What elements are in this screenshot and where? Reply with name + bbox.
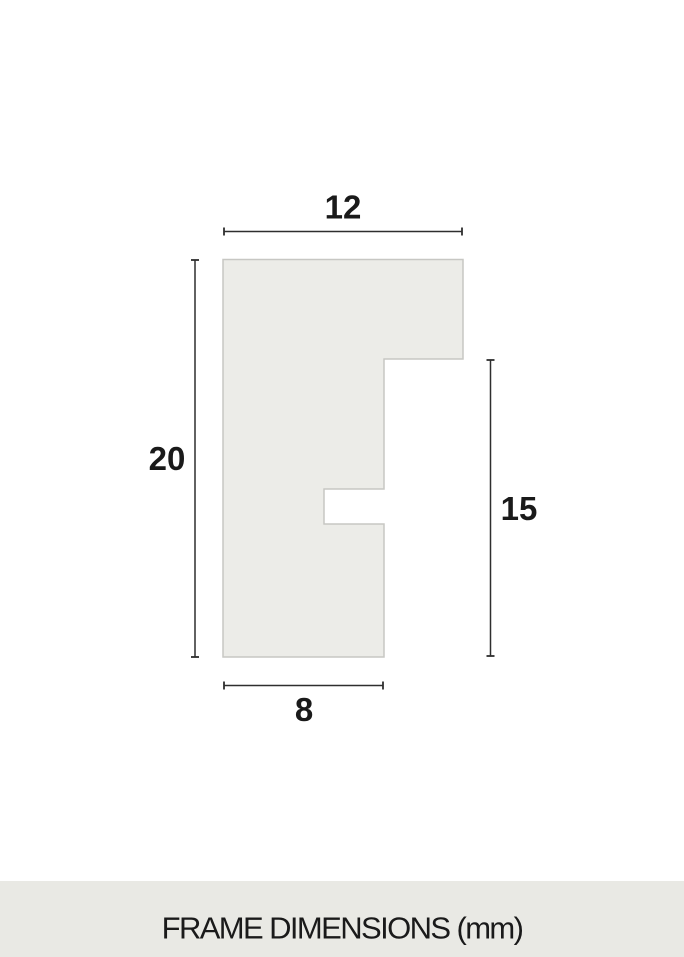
- svg-text:15: 15: [501, 490, 538, 527]
- svg-text:FRAME DIMENSIONS (mm): FRAME DIMENSIONS (mm): [162, 911, 523, 946]
- svg-text:20: 20: [149, 440, 186, 477]
- svg-text:8: 8: [295, 691, 313, 728]
- svg-text:12: 12: [325, 189, 362, 226]
